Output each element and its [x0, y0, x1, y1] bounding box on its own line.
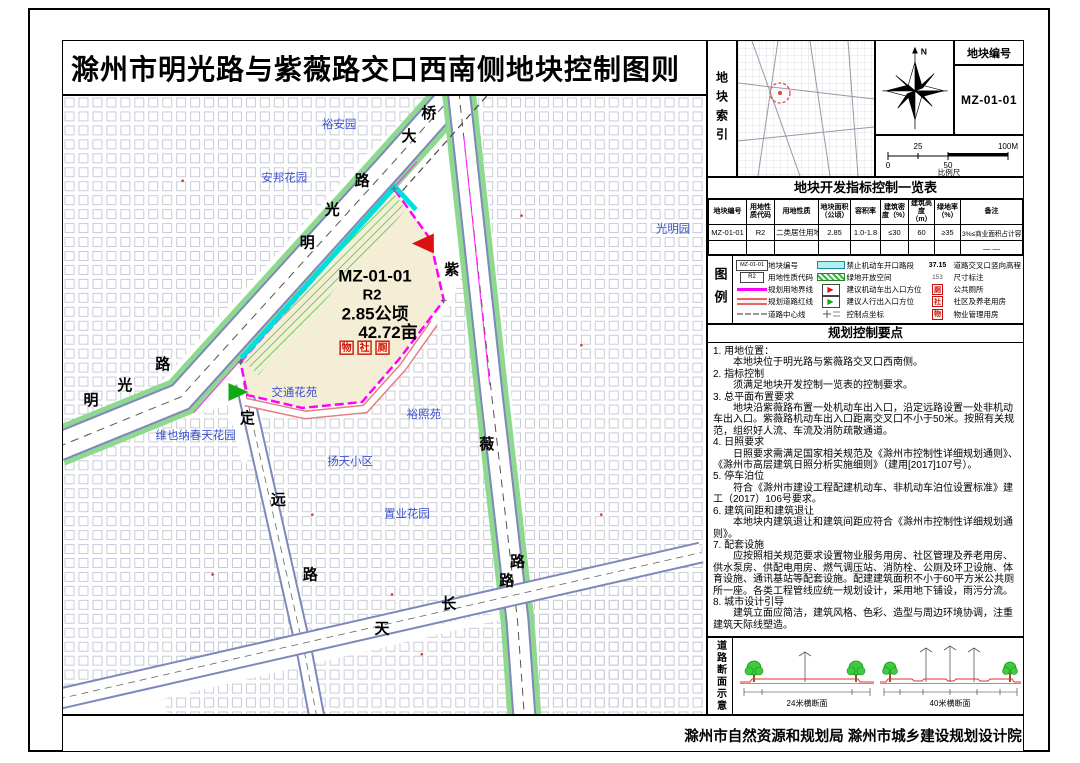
north-label: N	[921, 46, 927, 56]
footer-bar: 滁州市自然资源和规划局 滁州市城乡建设规划设计院	[62, 715, 1024, 752]
legend-item: ▶ 建议人行出入口方位	[815, 296, 922, 308]
legend-label: 公共厕所	[954, 284, 984, 295]
dimension-line	[744, 688, 870, 696]
col-header: 绿地率（%）	[935, 200, 961, 225]
dimension-line	[884, 688, 1017, 696]
facility-label: 厕	[378, 342, 388, 354]
main-map: 物 社 厕 MZ-01-01 R2 2.85公顷 42.72亩 明 光 路	[62, 95, 707, 715]
notes-body: 1. 用地位置： 本地块位于明光路与紫薇路交叉口西南侧。 2. 指标控制 须满足…	[708, 343, 1023, 631]
note-heading: 4. 日照要求	[713, 437, 1018, 448]
section-caption: 24米横断面	[787, 698, 828, 708]
use-code-swatch: R2	[740, 272, 764, 283]
note-text: 本地块位于明光路与紫薇路交叉口西南侧。	[713, 357, 1018, 368]
location-dot	[778, 91, 782, 95]
cell: 1.0-1.8	[851, 225, 881, 241]
legend-item: MZ-01-01 地块编号	[736, 259, 815, 271]
cell: ≥35	[935, 225, 961, 241]
col-header: 用地性质代码	[747, 200, 775, 225]
cell: 二类居住用地	[775, 225, 819, 241]
page-title: 滁州市明光路与紫薇路交口西南侧地块控制图则	[63, 48, 680, 88]
place-label: 裕安园	[322, 117, 356, 131]
vehicle-entry-swatch: ▶	[822, 284, 840, 296]
facility-label: 物	[342, 341, 352, 354]
legend-item: ▶ 建议机动车出入口方位	[815, 284, 922, 296]
legend-label: 道路中心线	[768, 309, 806, 320]
legend-item: 153 尺寸标注	[922, 271, 1022, 283]
parcel-no-value: MZ-01-01	[954, 65, 1024, 135]
road-label: 明	[83, 392, 98, 409]
parcel-area-mu: 42.72亩	[358, 322, 417, 342]
sheet-border: 滁州市明光路与紫薇路交口西南侧地块控制图则	[28, 8, 1050, 752]
compass-rose: N	[876, 41, 953, 134]
legend-label: 物业管理用房	[954, 309, 999, 320]
plan-sheet: 滁州市明光路与紫薇路交口西南侧地块控制图则	[0, 0, 1080, 763]
road-section-left: 24米横断面	[736, 640, 878, 712]
note-heading: 5. 停车泊位	[713, 471, 1018, 482]
legend-item: 绿地开放空间	[815, 271, 922, 283]
place-label: 交通花苑	[271, 385, 317, 399]
pedestrian-entry-swatch: ▶	[822, 296, 840, 308]
toilet-swatch: 厕	[932, 284, 943, 295]
legend: MZ-01-01 地块编号 R2 用地性质代码 规划用地界线 规划道路红线	[707, 255, 1024, 324]
note-heading: 1. 用地位置：	[713, 346, 1018, 357]
boundary-swatch	[737, 288, 767, 291]
place-label: 置业花园	[384, 508, 430, 521]
note-heading: 2. 指标控制	[713, 369, 1018, 380]
road-label: 紫	[444, 261, 459, 278]
legend-title: 图例	[707, 255, 733, 324]
note-heading: 8. 城市设计引导	[713, 597, 1018, 608]
col-header: 容积率	[851, 200, 881, 225]
index-map-canvas	[738, 41, 874, 176]
cell: 60	[909, 225, 935, 241]
title-box: 滁州市明光路与紫薇路交口西南侧地块控制图则	[62, 40, 707, 95]
no-open-swatch	[817, 261, 845, 269]
legend-item: 37.15 道路交叉口竖向高程	[922, 259, 1022, 271]
legend-label: 建议人行出入口方位	[847, 296, 915, 307]
lamp-pole-icon	[799, 652, 811, 682]
redline-swatch	[737, 298, 767, 305]
legend-label: 社区及养老用房	[954, 296, 1007, 307]
parcel-area-ha: 2.85公顷	[342, 304, 409, 323]
scale-100: 100M	[998, 142, 1018, 151]
scale-bar: 25 100M 0 50 比例尺	[875, 135, 1024, 177]
parcel-no-header: 地块编号	[954, 40, 1024, 65]
north-arrow	[912, 47, 918, 54]
note-heading: 3. 总平面布置要求	[713, 392, 1018, 403]
scale-caption: 比例尺	[938, 167, 961, 176]
legend-item: 禁止机动车开口路段	[815, 259, 922, 271]
note-text: 应按照相关规范要求设置物业服务用房、社区管理及养老用房、供水泵房、供配电用房、燃…	[713, 551, 1018, 597]
green-space-swatch	[817, 273, 845, 281]
road-label: 远	[271, 492, 286, 509]
scale-25: 25	[914, 142, 923, 151]
index-map	[737, 40, 875, 177]
road-label: 桥	[421, 104, 436, 122]
indicator-table-grid: 地块编号 用地性质代码 用地性质 地块面积（公顷） 容积率 建筑密度（%） 建筑…	[708, 199, 1023, 257]
legend-label: 绿地开放空间	[847, 272, 892, 283]
note-heading: 7. 配套设施	[713, 540, 1018, 551]
centerline-swatch	[737, 313, 767, 315]
legend-label: 规划用地界线	[768, 284, 813, 295]
legend-item: 社 社区及养老用房	[922, 296, 1022, 308]
pavement-profile	[740, 679, 874, 682]
control-point-swatch	[821, 309, 841, 319]
col-header: 建筑高度（m）	[909, 200, 935, 225]
place-label: 裕照苑	[407, 407, 442, 421]
road-label: 光	[116, 376, 132, 394]
note-text: 建筑立面应简洁，建筑风格、色彩、造型与周边环境协调，注重建筑天际线塑造。	[713, 608, 1018, 631]
legend-label: 道路交叉口竖向高程	[954, 260, 1022, 271]
road-sections: 24米横断面	[707, 637, 1024, 715]
road-label: 长	[441, 594, 456, 612]
note-text: 须满足地块开发控制一览表的控制要求。	[713, 380, 1018, 391]
road-section-right: 40米横断面	[878, 640, 1023, 712]
legend-label: 用地性质代码	[768, 272, 813, 283]
legend-label: 规划道路红线	[768, 296, 813, 307]
cell: 2.85	[819, 225, 851, 241]
place-label: 维也纳春天花园	[156, 429, 236, 442]
cell: ≤30	[881, 225, 909, 241]
road-label: 路	[499, 571, 515, 589]
cell: 3%≤商业面积占计容面积≤10%	[961, 225, 1023, 241]
place-label: 扬天小区	[327, 454, 373, 468]
col-header: 备注	[961, 200, 1023, 225]
note-text: 本地块内建筑退让和建筑间距应符合《滁州市控制性详细规划通则》。	[713, 517, 1018, 540]
table-row: MZ-01-01 R2 二类居住用地 2.85 1.0-1.8 ≤30 60 ≥…	[709, 225, 1023, 241]
facility-label: 社	[359, 341, 370, 354]
road-label: 大	[401, 127, 416, 145]
road-label: 定	[240, 409, 255, 427]
facility-boxes: 物 社 厕	[340, 341, 389, 354]
notes-title: 规划控制要点	[708, 325, 1023, 343]
road-label: 路	[355, 172, 371, 190]
road-label: 光	[324, 201, 340, 219]
legend-label: 尺寸标注	[954, 272, 984, 283]
road-label: 薇	[479, 435, 494, 453]
parcel-use: R2	[362, 286, 381, 303]
property-swatch: 物	[932, 309, 943, 320]
parcel-id-swatch: MZ-01-01	[736, 260, 768, 271]
dimension-swatch: 153	[922, 274, 954, 281]
legend-label: 建议机动车出入口方位	[847, 284, 922, 295]
main-map-canvas: 物 社 厕 MZ-01-01 R2 2.85公顷 42.72亩 明 光 路	[63, 96, 706, 714]
legend-label: 控制点坐标	[847, 309, 885, 320]
parcel-id: MZ-01-01	[338, 266, 411, 285]
footer-institutions: 滁州市自然资源和规划局 滁州市城乡建设规划设计院	[651, 725, 1055, 746]
col-header: 地块编号	[709, 200, 747, 225]
road-label: 天	[375, 620, 390, 637]
legend-label: 地块编号	[768, 260, 798, 271]
planning-notes: 规划控制要点 1. 用地位置： 本地块位于明光路与紫薇路交叉口西南侧。 2. 指…	[707, 324, 1024, 637]
col-header: 地块面积（公顷）	[819, 200, 851, 225]
col-header: 建筑密度（%）	[881, 200, 909, 225]
road-label: 路	[510, 552, 526, 570]
scale-0: 0	[886, 161, 891, 170]
note-text: 日照要求需满足国家相关规范及《滁州市控制性详细规划通则》、《滁州市高层建筑日照分…	[713, 449, 1018, 472]
legend-item: 物 物业管理用房	[922, 308, 1022, 320]
note-text: 地块沿紫薇路布置一处机动车出入口，沿定远路设置一处非机动车出入口。紫薇路机动车出…	[713, 403, 1018, 437]
indicator-table: 地块开发指标控制一览表 地块编号 用地性质代码 用地性质 地块面积（公顷） 容积…	[707, 177, 1024, 255]
place-label: 光明园	[656, 222, 690, 236]
community-swatch: 社	[932, 296, 943, 307]
legend-label: 禁止机动车开口路段	[847, 260, 915, 271]
cell: R2	[747, 225, 775, 241]
legend-item: 道路中心线	[736, 308, 815, 320]
scale-bar-canvas: 25 100M 0 50 比例尺	[876, 136, 1023, 176]
legend-item: 规划用地界线	[736, 284, 815, 296]
section-caption: 40米横断面	[930, 698, 971, 708]
legend-item: 规划道路红线	[736, 296, 815, 308]
road-label: 路	[303, 565, 319, 583]
legend-item: 厕 公共厕所	[922, 284, 1022, 296]
lamp-pole-icon	[920, 646, 980, 682]
road-label: 路	[155, 355, 171, 373]
elevation-swatch: 37.15	[922, 262, 954, 269]
legend-item: 控制点坐标	[815, 308, 922, 320]
legend-item: R2 用地性质代码	[736, 271, 815, 283]
road-sections-title: 道路断面示意	[707, 637, 733, 715]
road-label: 明	[300, 235, 315, 252]
indicator-table-title: 地块开发指标控制一览表	[708, 178, 1023, 199]
cell: MZ-01-01	[709, 225, 747, 241]
col-header: 用地性质	[775, 200, 819, 225]
place-label: 安邦花园	[261, 171, 307, 185]
note-text: 符合《滁州市建设工程配建机动车、非机动车泊位设置标准》建工（2017）106号要…	[713, 483, 1018, 506]
pavement-profile	[880, 679, 1021, 682]
compass: N	[875, 40, 954, 135]
note-heading: 6. 建筑间距和建筑退让	[713, 506, 1018, 517]
parcel-index-label: 地块索引	[707, 40, 737, 177]
